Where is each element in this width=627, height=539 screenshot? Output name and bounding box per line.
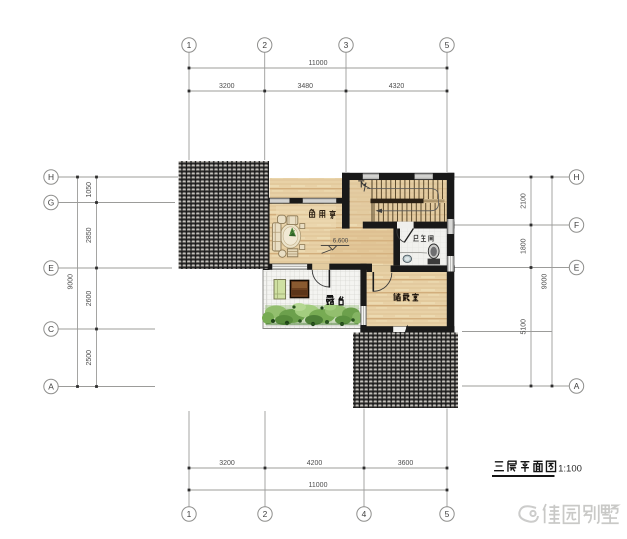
svg-text:1050: 1050 <box>86 182 93 198</box>
svg-text:4320: 4320 <box>389 83 405 90</box>
svg-text:2100: 2100 <box>521 193 528 209</box>
svg-text:11000: 11000 <box>309 482 328 489</box>
svg-text:2: 2 <box>263 509 268 519</box>
svg-text:C: C <box>48 324 54 334</box>
svg-text:3200: 3200 <box>219 83 235 90</box>
svg-text:9000: 9000 <box>68 274 75 290</box>
svg-text:11000: 11000 <box>309 60 328 67</box>
svg-text:A: A <box>574 381 580 391</box>
svg-text:6.600: 6.600 <box>333 238 349 245</box>
svg-text:5100: 5100 <box>521 319 528 335</box>
svg-text:5: 5 <box>445 40 450 50</box>
svg-text:2850: 2850 <box>86 227 93 243</box>
svg-text:1: 1 <box>187 40 192 50</box>
svg-text:4200: 4200 <box>307 460 323 467</box>
svg-text:H: H <box>48 172 54 182</box>
svg-text:1:100: 1:100 <box>558 464 582 475</box>
svg-text:1: 1 <box>187 509 192 519</box>
svg-text:2600: 2600 <box>86 291 93 307</box>
svg-text:2500: 2500 <box>86 350 93 366</box>
svg-text:E: E <box>574 263 580 273</box>
svg-text:3600: 3600 <box>398 460 414 467</box>
svg-text:G: G <box>48 198 55 208</box>
svg-text:F: F <box>574 220 579 230</box>
svg-text:3480: 3480 <box>298 83 314 90</box>
svg-text:5: 5 <box>445 509 450 519</box>
svg-text:E: E <box>48 263 54 273</box>
svg-text:4: 4 <box>362 509 367 519</box>
svg-text:3200: 3200 <box>219 460 235 467</box>
svg-text:3: 3 <box>344 40 349 50</box>
svg-text:A: A <box>48 382 54 392</box>
svg-text:H: H <box>573 172 579 182</box>
svg-text:1800: 1800 <box>521 238 528 254</box>
svg-text:9000: 9000 <box>542 274 549 290</box>
svg-text:2: 2 <box>262 40 267 50</box>
